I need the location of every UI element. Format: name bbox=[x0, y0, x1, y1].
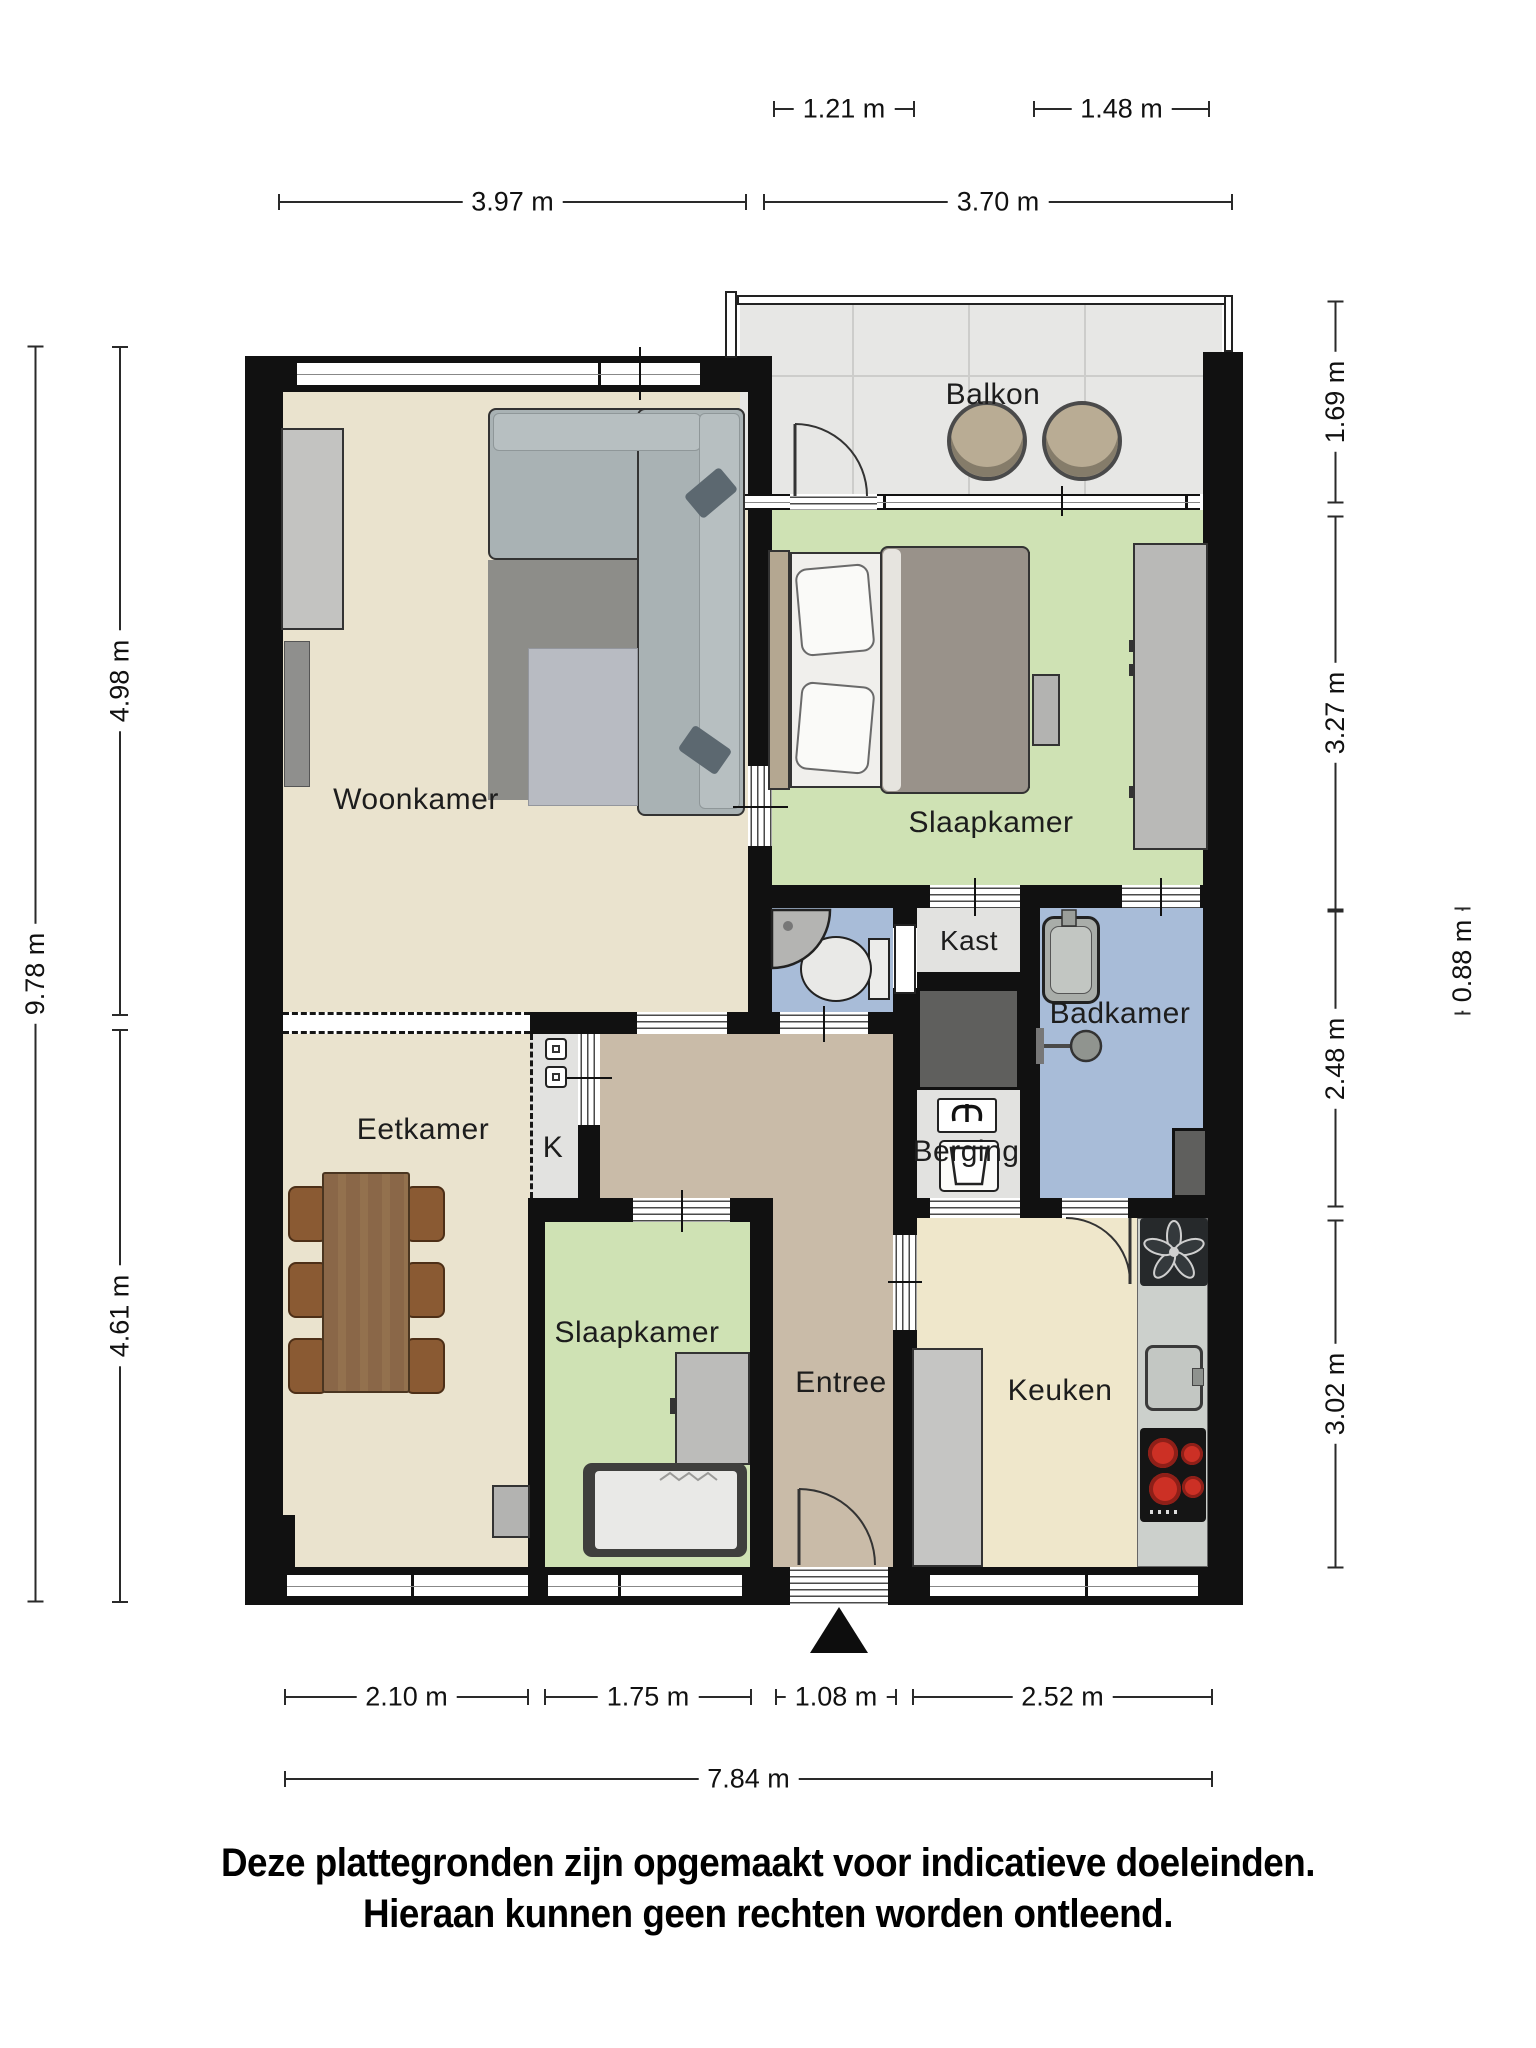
label-entree: Entree bbox=[795, 1366, 886, 1400]
washer-tap-icon bbox=[954, 1104, 981, 1122]
balcony-door-arc bbox=[795, 424, 867, 496]
dim-top-right: 3.70 m bbox=[763, 191, 1233, 213]
label-badkamer: Badkamer bbox=[1050, 997, 1191, 1031]
disclaimer-line-2: Hieraan kunnen geen rechten worden ontle… bbox=[61, 1889, 1474, 1940]
dim-left-lower: 4.61 m bbox=[109, 1029, 131, 1603]
shower-bracket bbox=[1036, 1028, 1044, 1064]
plan-line-overlay bbox=[0, 0, 1536, 2048]
entrance-arrow-icon bbox=[810, 1607, 868, 1653]
front-door-arc bbox=[799, 1489, 875, 1565]
dim-bottom-total: 7.84 m bbox=[284, 1768, 1213, 1790]
dim-right-kitchen: 3.02 m bbox=[1325, 1220, 1347, 1569]
label-woonkamer: Woonkamer bbox=[333, 783, 499, 817]
dim-right-bedroom: 3.27 m bbox=[1325, 516, 1347, 911]
bathroom-tap bbox=[1062, 910, 1076, 926]
dim-bottom-1: 2.10 m bbox=[284, 1686, 529, 1708]
label-meterkast: K bbox=[543, 1131, 564, 1165]
dim-top-small-left: 1.21 m bbox=[773, 98, 915, 120]
extractor-fan-icon bbox=[1142, 1221, 1205, 1281]
disclaimer: Deze plattegronden zijn opgemaakt voor i… bbox=[61, 1838, 1474, 1940]
dim-bottom-2: 1.75 m bbox=[544, 1686, 752, 1708]
label-slaapkamer-onder: Slaapkamer bbox=[554, 1316, 719, 1350]
shower-head bbox=[1071, 1031, 1101, 1061]
label-slaapkamer-boven: Slaapkamer bbox=[908, 806, 1073, 840]
dim-top-left: 3.97 m bbox=[278, 191, 747, 213]
corner-basin bbox=[772, 910, 830, 968]
disclaimer-line-1: Deze plattegronden zijn opgemaakt voor i… bbox=[61, 1838, 1474, 1889]
pillow-zigzag bbox=[660, 1473, 717, 1480]
dim-bottom-4: 2.52 m bbox=[912, 1686, 1213, 1708]
dim-right-inner: 0.88 m bbox=[1452, 908, 1474, 1015]
label-eetkamer: Eetkamer bbox=[357, 1113, 489, 1147]
label-kast: Kast bbox=[940, 925, 998, 957]
label-berging: Berging bbox=[913, 1135, 1020, 1169]
dim-bottom-3: 1.08 m bbox=[775, 1686, 897, 1708]
label-balkon: Balkon bbox=[946, 378, 1041, 412]
dim-left-upper: 4.98 m bbox=[109, 346, 131, 1016]
dim-top-small-right: 1.48 m bbox=[1033, 98, 1210, 120]
dim-left-total: 9.78 m bbox=[25, 346, 47, 1603]
label-keuken: Keuken bbox=[1008, 1374, 1113, 1408]
dim-right-bath: 2.48 m bbox=[1325, 911, 1347, 1208]
bathroom-door-arc bbox=[1066, 1218, 1130, 1282]
floorplan-canvas: Woonkamer Slaapkamer Balkon Kast Badkame… bbox=[0, 0, 1536, 2048]
basin-tap bbox=[783, 921, 793, 931]
dim-right-balcony: 1.69 m bbox=[1325, 301, 1347, 504]
